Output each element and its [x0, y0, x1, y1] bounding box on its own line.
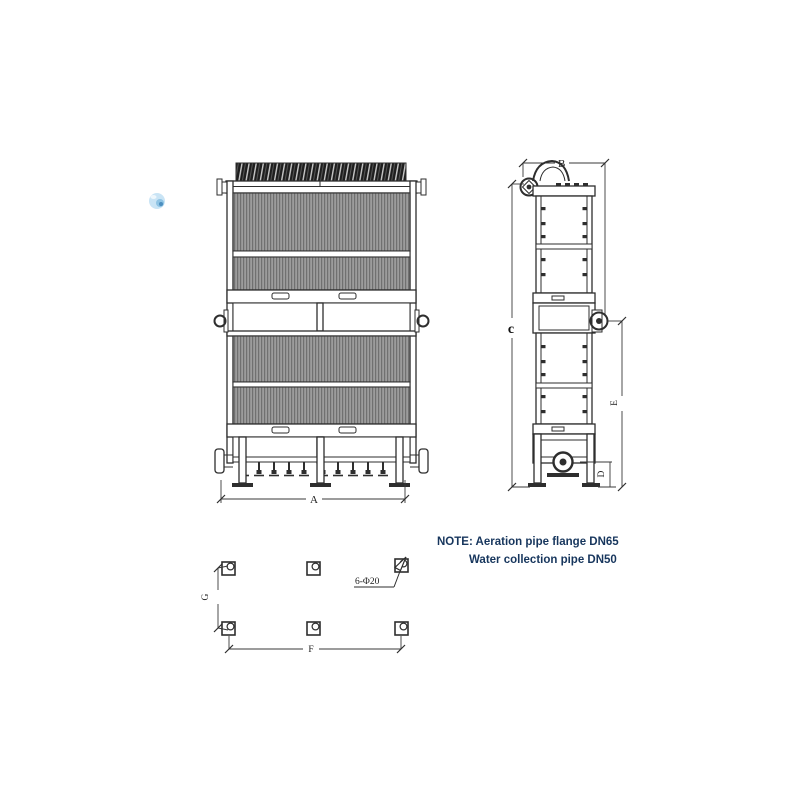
- note-line-2: Water collection pipe DN50: [469, 554, 617, 566]
- note-line-1: NOTE: Aeration pipe flange DN65: [437, 536, 619, 548]
- watermark-sphere-icon: [149, 193, 165, 209]
- aeration-nozzles: [239, 462, 388, 476]
- side-view: B: [508, 158, 626, 491]
- upper-membrane-cassette: [233, 193, 410, 290]
- note-block: NOTE: Aeration pipe flange DN65 Water co…: [437, 536, 619, 566]
- side-top-rail: [533, 183, 595, 196]
- dimension-e: E: [608, 317, 626, 491]
- front-view: A: [215, 163, 429, 506]
- drawing-canvas: A B: [0, 0, 800, 800]
- mid-flange-left: [215, 310, 229, 332]
- lower-membrane-cassette: [233, 336, 410, 424]
- dimension-f: F: [225, 636, 405, 655]
- dim-label-g: G: [201, 593, 211, 600]
- membrane-sheet-tops: [236, 163, 406, 181]
- side-mid-frame: [533, 293, 595, 333]
- hole-callout-label: 6-Φ20: [355, 577, 380, 587]
- top-header-rail: [226, 181, 417, 193]
- foot-pads: [222, 559, 408, 635]
- dim-label-c: c: [508, 322, 514, 337]
- dimension-c: c: [508, 180, 530, 491]
- mid-flange-right: [415, 310, 429, 332]
- technical-drawing: A B: [0, 0, 800, 800]
- mid-rail-upper: [227, 290, 416, 303]
- dim-label-e: E: [610, 400, 620, 406]
- side-lower-module: [536, 333, 592, 424]
- dim-label-a: A: [310, 494, 318, 506]
- dim-label-f: F: [308, 645, 313, 655]
- mid-rail-lower: [227, 424, 416, 437]
- side-upper-module: [536, 196, 592, 293]
- plan-view: G F 6-Φ20: [201, 557, 408, 655]
- mid-frame: [227, 303, 416, 336]
- dim-label-d: D: [597, 470, 607, 477]
